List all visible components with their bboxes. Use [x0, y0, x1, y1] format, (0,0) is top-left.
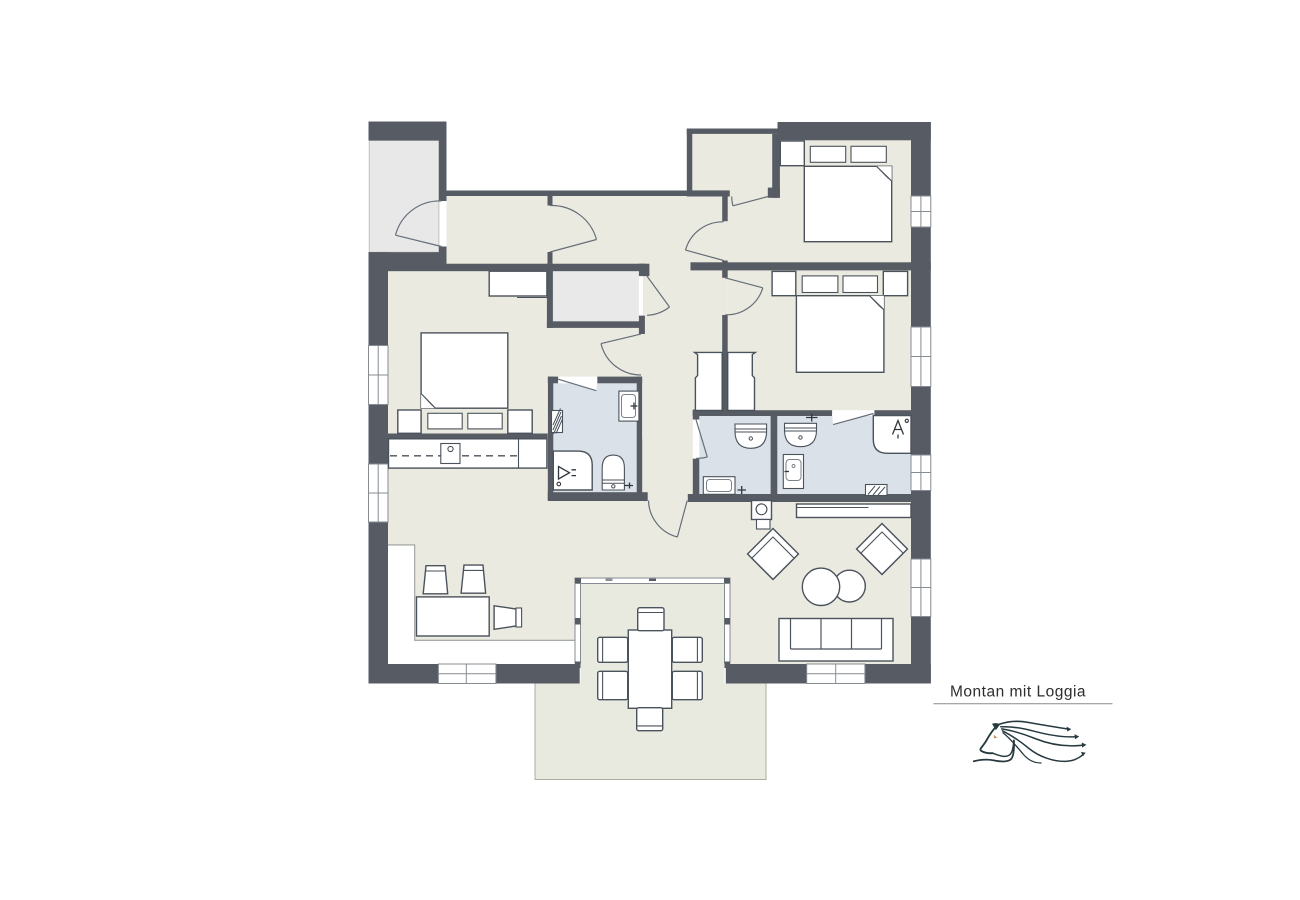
svg-text:Montan mit Loggia: Montan mit Loggia [950, 684, 1086, 701]
